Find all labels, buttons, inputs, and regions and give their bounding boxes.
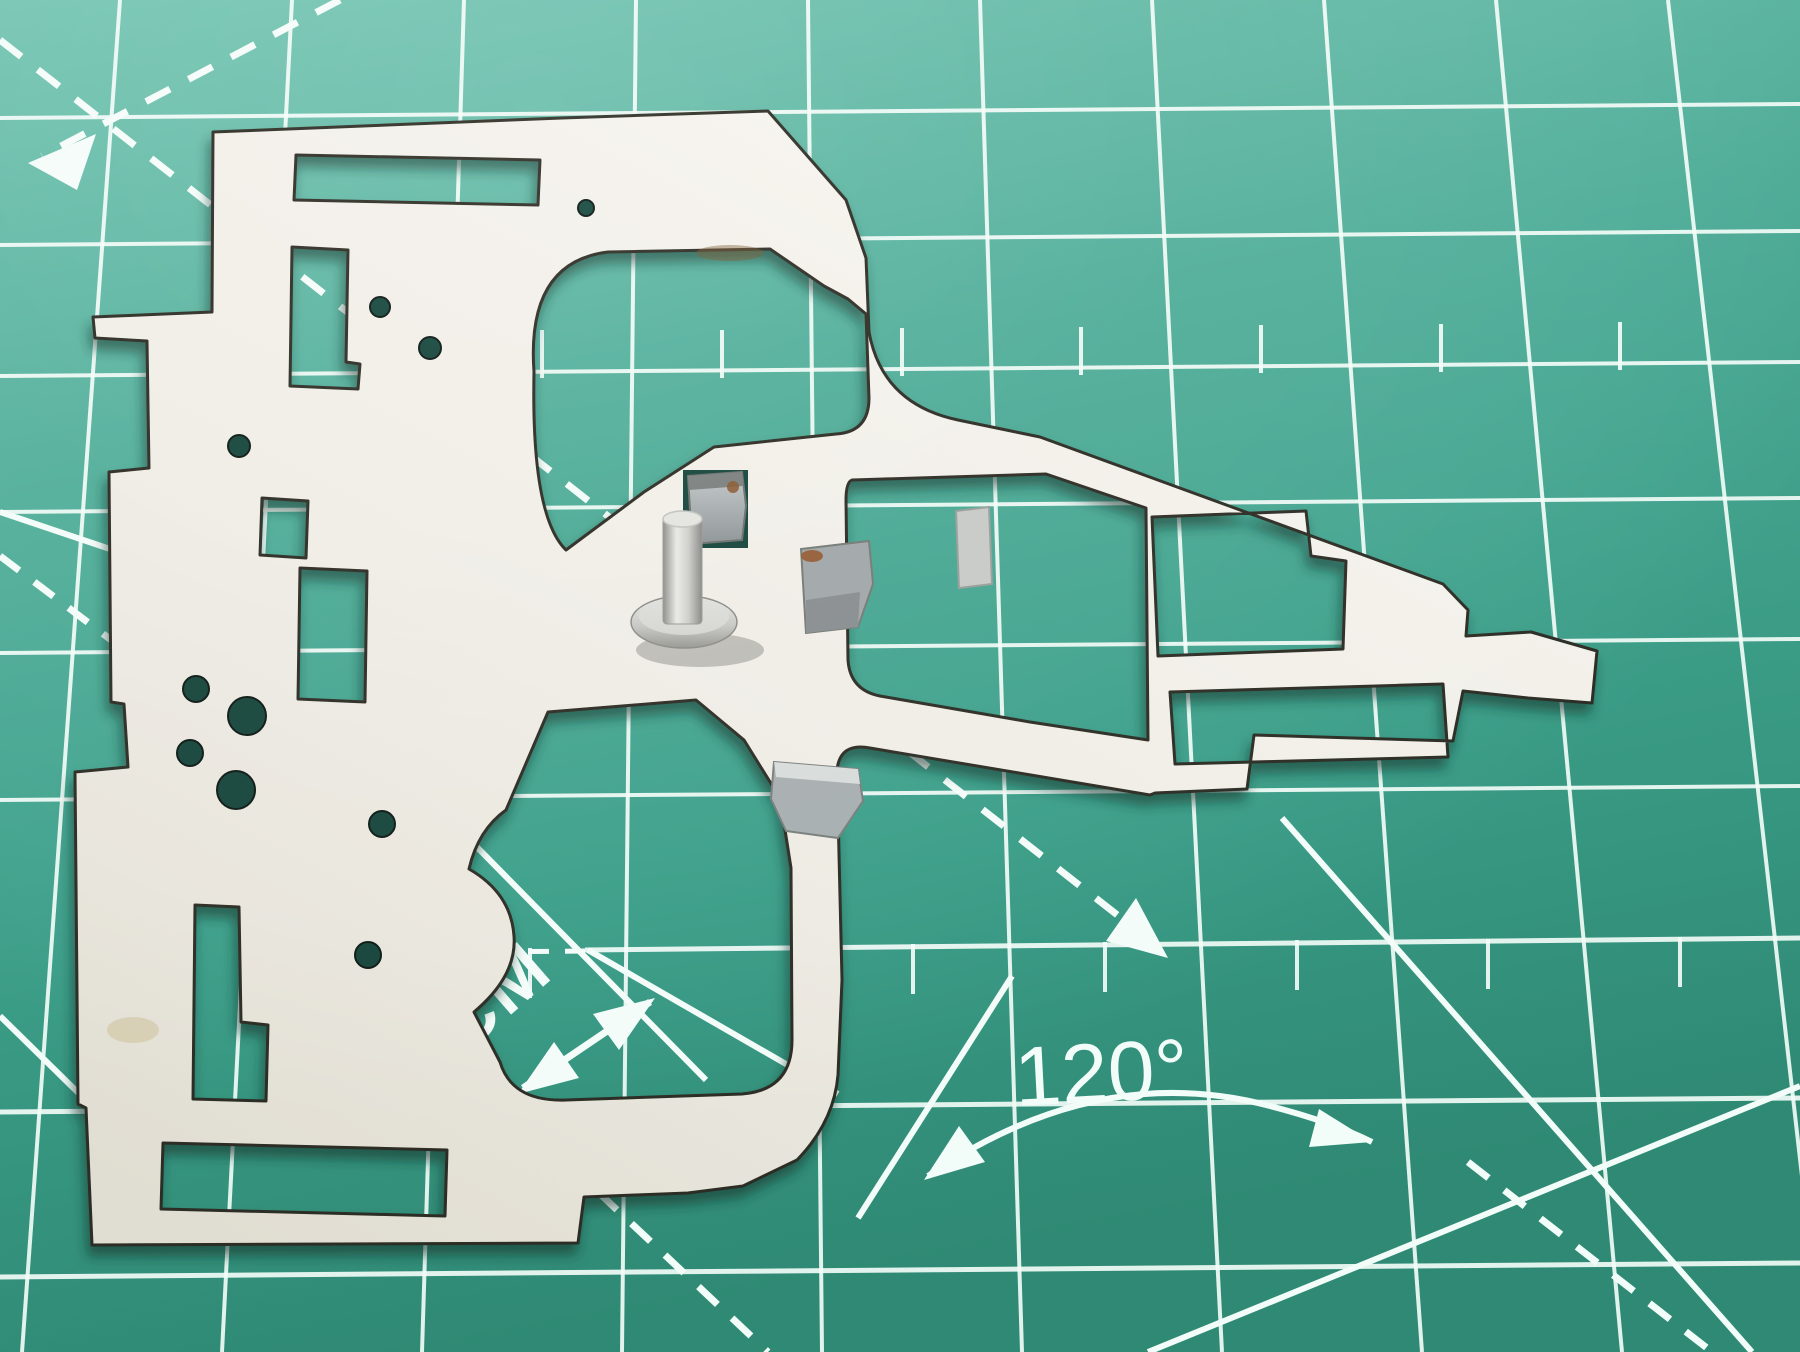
photo-of-metal-plate-on-cutting-mat: 120° 1CM xyxy=(0,0,1800,1352)
scene-canvas: 120° 1CM xyxy=(0,0,1800,1352)
lighting-overlay xyxy=(0,0,1800,1352)
